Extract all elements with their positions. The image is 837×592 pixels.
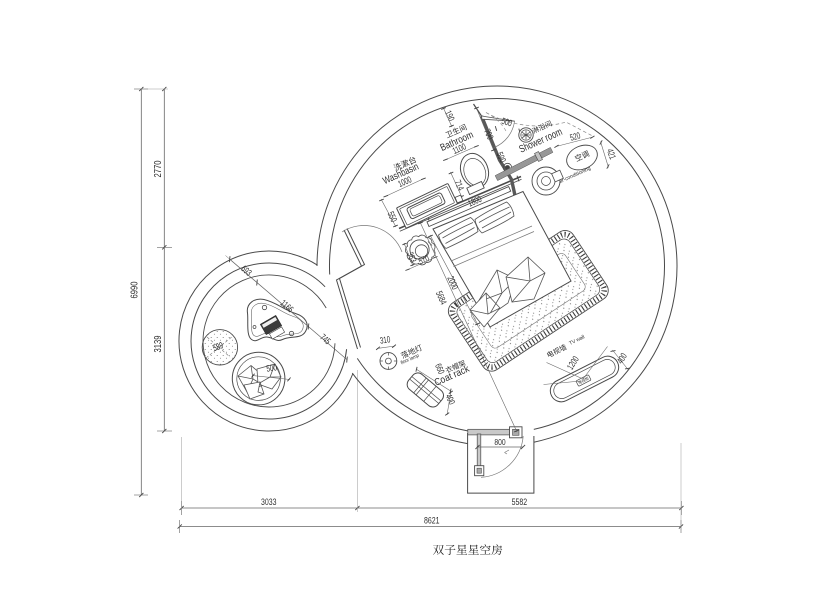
svg-text:310: 310: [379, 334, 391, 345]
svg-text:2000: 2000: [445, 274, 460, 291]
svg-text:500: 500: [266, 362, 278, 373]
svg-text:700: 700: [482, 127, 495, 141]
svg-text:745: 745: [318, 332, 332, 346]
svg-text:1200: 1200: [565, 354, 581, 371]
svg-text:520: 520: [569, 130, 582, 142]
svg-text:693: 693: [239, 264, 253, 278]
svg-text:5684: 5684: [434, 289, 449, 306]
svg-text:500: 500: [500, 116, 513, 128]
svg-text:floor lamp: floor lamp: [400, 353, 420, 366]
svg-text:6990: 6990: [130, 281, 141, 298]
svg-text:8621: 8621: [424, 516, 440, 527]
svg-text:TV wall: TV wall: [568, 334, 585, 347]
svg-text:550: 550: [386, 210, 399, 224]
svg-text:5582: 5582: [512, 497, 528, 508]
svg-text:2770: 2770: [153, 160, 164, 177]
svg-text:421: 421: [605, 147, 618, 160]
svg-text:800: 800: [494, 437, 505, 447]
svg-text:1800: 1800: [467, 194, 484, 209]
svg-text:3033: 3033: [261, 497, 277, 508]
svg-text:3139: 3139: [153, 335, 164, 352]
